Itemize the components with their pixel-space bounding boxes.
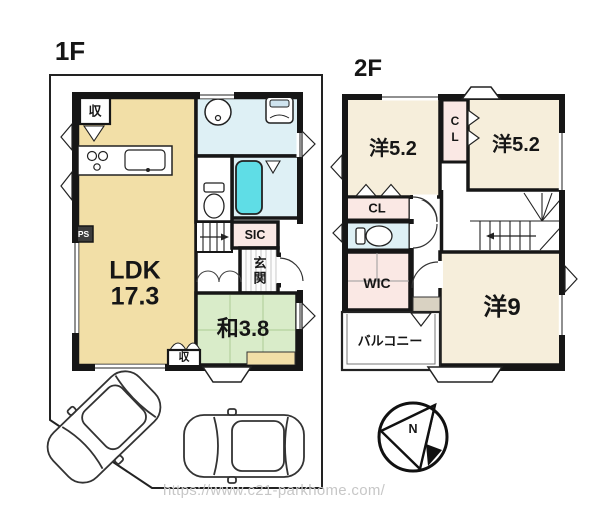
ldk-label: LDK [109, 259, 160, 284]
closet-mid-label: CL [449, 114, 461, 146]
wic-label: WIC [363, 276, 390, 290]
floor-1f-title: 1F [55, 38, 85, 64]
genkan-label: 玄関 [253, 256, 266, 286]
floor-1f [61, 92, 315, 383]
counter-box [413, 297, 440, 313]
ldk-size-label: 17.3 [111, 285, 160, 310]
toilet-2f-icon [356, 226, 392, 246]
closet-left-label: CL [368, 202, 385, 215]
floorplan-page: 1F LDK 17.3 和3.8 SIC 玄関 収 収 PS 2F 洋5.2 洋… [0, 0, 600, 522]
compass-north-label: N [408, 423, 417, 436]
bay-window-2f [428, 367, 502, 382]
storage-top-label: 収 [88, 105, 101, 118]
washitsu-label: 和3.8 [217, 318, 270, 340]
washing-machine-icon [266, 97, 293, 123]
doors-2f [410, 195, 443, 289]
car-horizontal-icon [184, 409, 304, 483]
washitsu-sill [247, 352, 295, 365]
stairs-2f [470, 193, 560, 250]
watermark-url: https://www.c21-parkhome.com/ [163, 482, 385, 499]
faucet-icon [146, 168, 150, 172]
kitchen-sink-icon [125, 150, 165, 170]
toilet-1f-icon [204, 183, 224, 218]
bay-window-top [462, 87, 500, 99]
floorplan-drawing [0, 0, 600, 522]
bedroom-right-label: 洋5.2 [492, 135, 540, 155]
balcony-label: バルコニー [358, 335, 423, 348]
storage-bottom-label: 収 [179, 353, 190, 364]
bathtub-icon [236, 161, 262, 214]
bedroom-left-label: 洋5.2 [369, 139, 417, 159]
compass [379, 403, 447, 471]
floor-2f-title: 2F [354, 57, 382, 81]
sic-label: SIC [245, 229, 266, 242]
kitchen-counter [78, 146, 172, 175]
ps-label: PS [78, 230, 89, 239]
bedroom-main-label: 洋9 [483, 296, 520, 320]
